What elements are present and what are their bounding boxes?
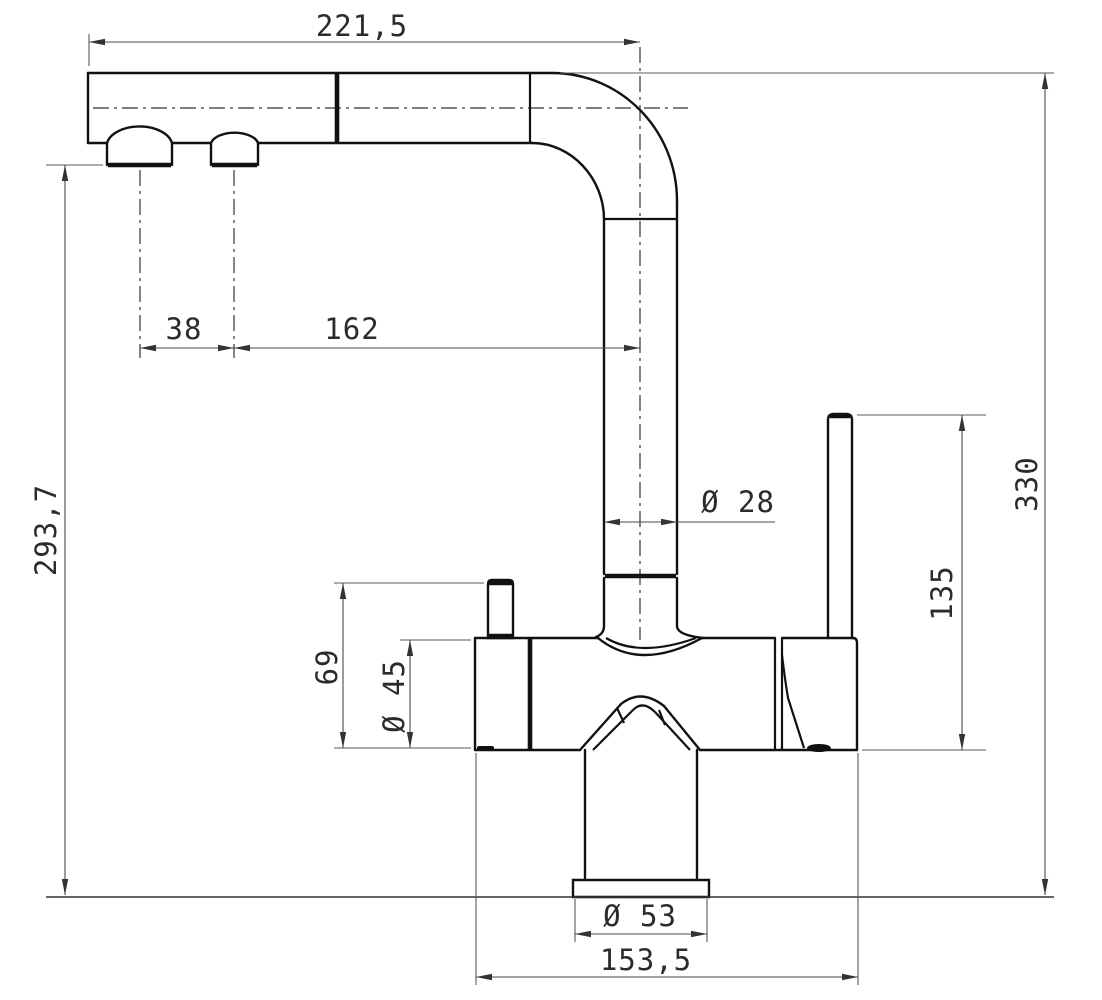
dim-riser-diameter: Ø 28 [604, 485, 775, 522]
dimensions: 221,5 38 162 293,7 330 Ø 28 [29, 9, 1054, 985]
cartridge-joint-lines [775, 638, 782, 750]
dim-total-height: 330 [560, 73, 1054, 895]
dim-label-base-diameter: Ø 53 [603, 899, 677, 933]
faucet-dimension-drawing: 221,5 38 162 293,7 330 Ø 28 [0, 0, 1102, 1000]
dim-spout-underside-height: 293,7 [29, 165, 103, 895]
leg-shaft [585, 750, 697, 880]
dim-aerator-to-axis: 162 [234, 312, 640, 348]
lever-base-contour [782, 655, 804, 748]
elbow-inner-arc [532, 143, 604, 219]
dim-label-lever-height: 135 [925, 565, 959, 620]
dim-lever-height: 135 [857, 415, 986, 750]
leg-cone-outer [580, 704, 700, 750]
dim-label-spout-reach: 221,5 [316, 9, 408, 43]
base-flange [573, 880, 709, 897]
dim-label-body-length: 153,5 [600, 943, 692, 977]
aerator2-dome [211, 133, 258, 165]
handle-set-screw [807, 744, 831, 752]
dim-label-body-diameter: Ø 45 [377, 659, 411, 733]
dim-label-aerator-spacing: 38 [166, 312, 203, 346]
dim-body-diameter: Ø 45 [377, 640, 471, 748]
dim-label-total-height: 330 [1010, 456, 1044, 511]
leg-cone-inner-arc [633, 705, 655, 712]
body-right-cap [782, 638, 857, 750]
dim-aerator-spacing: 38 [140, 312, 234, 348]
leg-cone-inner [593, 710, 690, 750]
dim-label-riser-diameter: Ø 28 [701, 485, 775, 519]
dim-spout-reach: 221,5 [89, 9, 640, 66]
elbow-outer-arc [552, 73, 677, 201]
dim-label-side-port-height: 69 [310, 649, 344, 686]
aerator1-dome [107, 126, 172, 165]
riser-base-flare [596, 578, 703, 638]
dim-label-spout-underside-height: 293,7 [29, 484, 63, 576]
side-port-pin [488, 580, 513, 638]
body-end-plug [477, 746, 494, 751]
technical-drawing-canvas: 221,5 38 162 293,7 330 Ø 28 [0, 0, 1102, 1000]
dim-base-diameter: Ø 53 [575, 899, 707, 942]
dim-body-length: 153,5 [476, 753, 858, 985]
lever-handle [828, 414, 852, 638]
dim-label-aerator-to-axis: 162 [324, 312, 379, 346]
